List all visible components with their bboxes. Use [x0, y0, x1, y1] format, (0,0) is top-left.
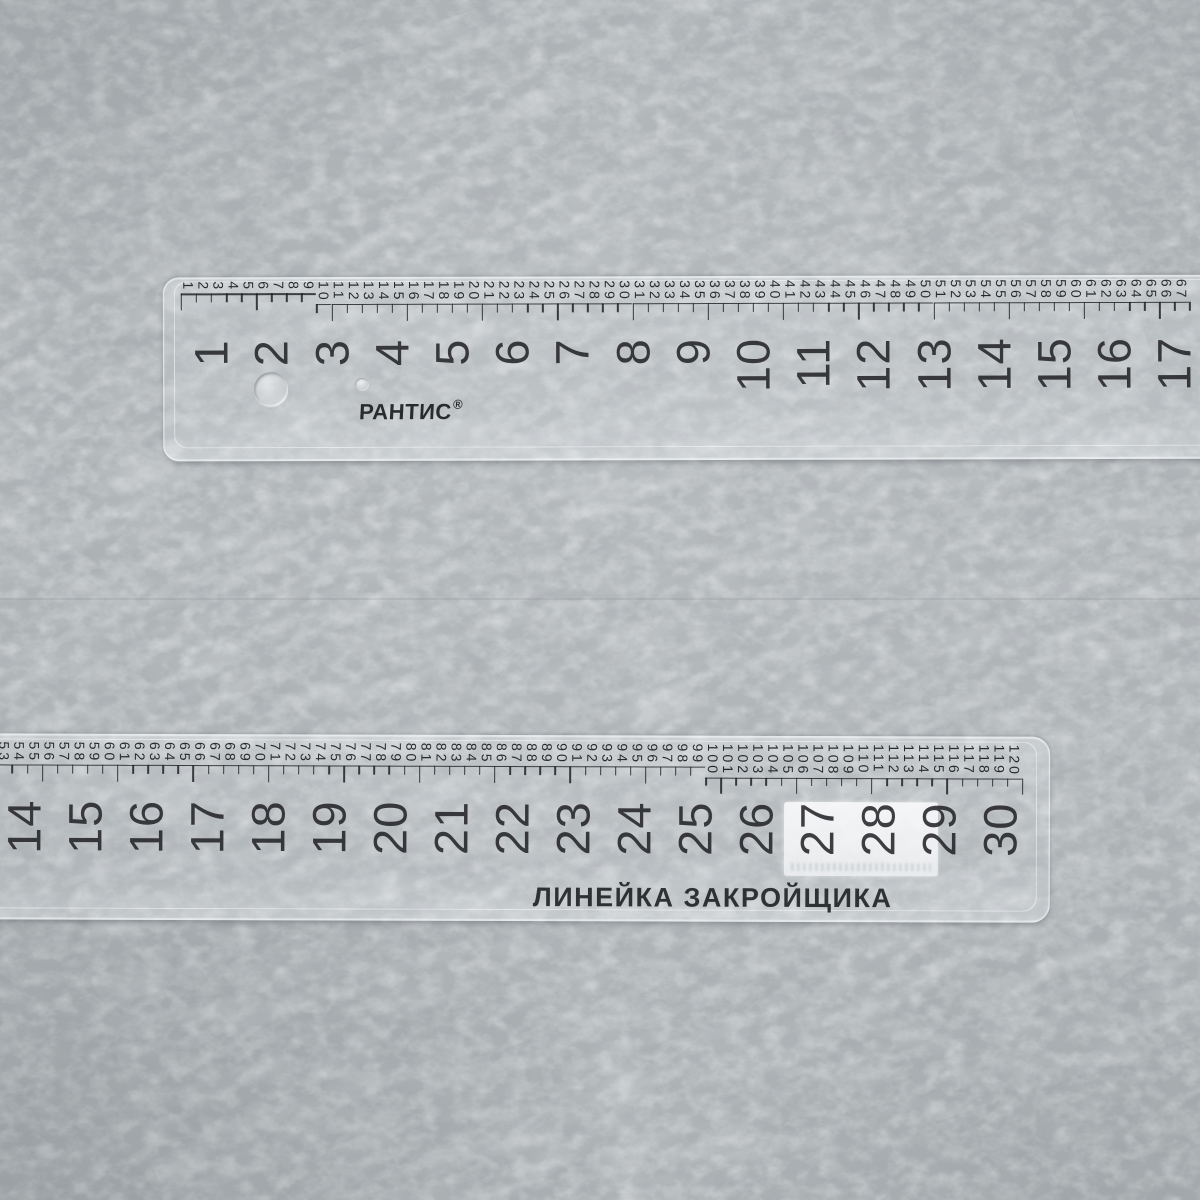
scale-underline	[1054, 302, 1069, 303]
scale-underline	[708, 303, 723, 304]
scale-underline	[464, 766, 479, 767]
scale-number: 40	[768, 280, 782, 302]
scale-underline	[437, 304, 452, 305]
scale-underline	[422, 304, 437, 305]
scale-number: 5	[241, 281, 255, 292]
cm-number: 14	[970, 337, 1017, 391]
scale-underline	[916, 778, 931, 779]
scale-underline	[978, 302, 993, 303]
scale-number: 43	[813, 280, 827, 302]
scale-underline	[962, 778, 977, 779]
scale-tick	[193, 765, 194, 782]
scale-number: 111	[872, 744, 886, 774]
scale-tick	[1159, 302, 1160, 319]
scale-underline	[117, 765, 132, 766]
scale-underline	[783, 303, 798, 304]
cm-number: 23	[549, 801, 596, 855]
scale-underline	[241, 293, 256, 294]
scale-number: 56	[42, 742, 56, 764]
scale-number: 54	[12, 741, 26, 763]
scale-underline	[1129, 302, 1144, 303]
scale-number: 93	[600, 743, 614, 765]
scale-number: 34	[678, 280, 692, 302]
scale-underline	[361, 304, 376, 305]
scale-underline	[871, 778, 886, 779]
cm-number: 17	[1151, 337, 1198, 391]
scale-number: 8	[287, 281, 301, 292]
scale-number: 42	[798, 280, 812, 302]
scale-underline	[813, 303, 828, 304]
scale-number: 114	[917, 744, 931, 775]
scale-number: 86	[495, 743, 509, 765]
scale-underline	[1159, 302, 1174, 303]
scale-underline	[57, 765, 72, 766]
scale-number: 63	[1114, 279, 1128, 301]
scale-number: 56	[1009, 279, 1023, 301]
scale-number: 44	[828, 280, 842, 302]
scale-number: 91	[570, 743, 584, 765]
scale-underline	[316, 304, 331, 305]
scale-underline	[1144, 302, 1159, 303]
scale-number: 89	[540, 743, 554, 765]
scale-underline	[1069, 302, 1084, 303]
cm-number: 5	[428, 339, 475, 366]
scale-underline	[811, 778, 826, 779]
scale-underline	[392, 304, 407, 305]
cm-number: 1	[188, 339, 235, 366]
scale-number: 60	[1069, 279, 1083, 301]
ruler-bottom-scale: 5354555657585960616263646566676869707172…	[0, 734, 1049, 921]
scale-underline	[886, 778, 901, 779]
scale-number: 48	[889, 280, 903, 302]
scale-underline	[178, 765, 193, 766]
scale-underline	[407, 304, 422, 305]
scale-underline	[647, 303, 662, 304]
cm-number: 27	[793, 802, 840, 856]
scale-number: 18	[437, 281, 451, 303]
scale-number: 20	[467, 281, 481, 303]
scale-number: 62	[133, 742, 147, 764]
scale-underline	[286, 293, 301, 294]
cm-number: 25	[671, 802, 718, 856]
scale-number: 58	[1039, 279, 1053, 301]
scale-underline	[572, 303, 587, 304]
scale-tick	[947, 778, 948, 795]
scale-underline	[690, 767, 705, 768]
scale-underline	[542, 303, 557, 304]
scale-number: 66	[193, 742, 207, 764]
scale-tick	[1022, 778, 1023, 795]
scale-number: 70	[253, 742, 267, 764]
scale-underline	[434, 766, 449, 767]
scale-underline	[826, 778, 841, 779]
scale-underline	[87, 765, 102, 766]
scale-tick	[343, 766, 344, 783]
cm-number: 15	[1030, 337, 1077, 391]
scale-number: 69	[238, 742, 252, 764]
cm-number: 26	[732, 802, 779, 856]
scale-number: 22	[497, 281, 511, 303]
scale-underline	[1084, 302, 1099, 303]
scale-tick	[117, 765, 118, 782]
scale-underline	[901, 778, 916, 779]
scale-number: 24	[527, 280, 541, 302]
scale-number: 103	[751, 744, 765, 776]
scale-number: 118	[977, 744, 991, 775]
scale-underline	[72, 765, 87, 766]
scale-number: 3	[211, 281, 225, 292]
scale-number: 67	[1175, 279, 1189, 301]
scale-number: 117	[962, 744, 976, 775]
scale-number: 81	[419, 743, 433, 765]
scale-number: 95	[630, 743, 644, 765]
scale-number: 15	[392, 281, 406, 303]
scale-tick	[482, 304, 483, 321]
scale-number: 36	[708, 280, 722, 302]
scale-number: 4	[226, 281, 240, 292]
scale-number: 79	[389, 743, 403, 765]
scale-number: 32	[648, 280, 662, 302]
scale-underline	[602, 303, 617, 304]
scale-number: 100	[706, 744, 720, 776]
scale-tick	[632, 303, 633, 320]
scale-underline	[196, 294, 211, 295]
cm-number: 18	[244, 800, 291, 854]
scale-underline	[479, 766, 494, 767]
scale-underline	[587, 303, 602, 304]
scale-tick	[708, 303, 709, 320]
scale-number: 23	[512, 281, 526, 303]
scale-number: 19	[452, 281, 466, 303]
scale-underline	[359, 766, 374, 767]
scale-underline	[918, 302, 933, 303]
scale-number: 92	[585, 743, 599, 765]
scale-number: 28	[588, 280, 602, 302]
scale-tick	[268, 765, 269, 782]
scale-number: 64	[1129, 279, 1143, 301]
scale-number: 90	[555, 743, 569, 765]
scale-number: 53	[964, 279, 978, 301]
scale-number: 80	[404, 743, 418, 765]
scale-number: 64	[163, 742, 177, 764]
scale-underline	[1114, 302, 1129, 303]
cm-number: 16	[1091, 337, 1138, 391]
scale-tick	[783, 303, 784, 320]
scale-underline	[298, 765, 313, 766]
scale-underline	[211, 294, 226, 295]
scale-underline	[193, 765, 208, 766]
scale-underline	[328, 765, 343, 766]
scale-underline	[768, 303, 783, 304]
scale-underline	[268, 765, 283, 766]
ruler-bottom: 5354555657585960616263646566676869707172…	[0, 733, 1050, 922]
ruler-top: 1234567891011121314151617181920212223242…	[163, 275, 1200, 462]
scale-underline	[374, 766, 389, 767]
scale-underline	[841, 778, 856, 779]
scale-number: 39	[753, 280, 767, 302]
scale-underline	[677, 303, 692, 304]
scale-underline	[0, 764, 12, 765]
scale-underline	[675, 767, 690, 768]
scale-underline	[27, 765, 42, 766]
scale-tick	[858, 303, 859, 320]
scale-tick	[1084, 302, 1085, 319]
scale-number: 9	[302, 281, 316, 292]
scale-underline	[947, 778, 962, 779]
scale-underline	[617, 303, 632, 304]
scale-number: 11	[332, 281, 346, 302]
cm-number: 30	[976, 802, 1023, 856]
cm-number: 21	[427, 801, 474, 855]
scale-underline	[1024, 302, 1039, 303]
scale-number: 83	[450, 743, 464, 765]
scale-number: 52	[949, 279, 963, 301]
scale-underline	[497, 304, 512, 305]
scale-number: 10	[317, 281, 331, 303]
cm-number: 19	[305, 800, 352, 854]
scale-underline	[331, 304, 346, 305]
scale-underline	[376, 304, 391, 305]
scale-number: 77	[359, 743, 373, 765]
scale-number: 58	[73, 742, 87, 764]
scale-number: 85	[480, 743, 494, 765]
ruler-top-scale: 1234567891011121314151617181920212223242…	[164, 276, 1200, 461]
scale-number: 62	[1099, 279, 1113, 301]
cm-number: 3	[308, 339, 355, 366]
scale-number: 41	[783, 280, 797, 302]
scale-underline	[482, 304, 497, 305]
scale-number: 105	[781, 744, 795, 776]
cm-number: 17	[183, 800, 230, 854]
scale-underline	[645, 766, 660, 767]
scale-number: 68	[223, 742, 237, 764]
scale-number: 59	[88, 742, 102, 764]
scale-number: 27	[573, 280, 587, 302]
scale-number: 25	[542, 280, 556, 302]
scale-number: 106	[796, 744, 810, 776]
scale-underline	[856, 778, 871, 779]
scale-underline	[693, 303, 708, 304]
scale-tick	[933, 302, 934, 319]
scale-underline	[271, 293, 286, 294]
scale-underline	[452, 304, 467, 305]
scale-number: 57	[1024, 279, 1038, 301]
scale-number: 59	[1054, 279, 1068, 301]
scale-number: 17	[422, 281, 436, 303]
scale-underline	[524, 766, 539, 767]
scale-number: 110	[857, 744, 871, 775]
scale-number: 108	[826, 744, 840, 776]
scale-number: 115	[932, 744, 946, 775]
scale-number: 97	[661, 743, 675, 765]
scale-number: 98	[676, 744, 690, 766]
scale-underline	[977, 778, 992, 779]
scale-number: 113	[902, 744, 916, 775]
scale-number: 13	[362, 281, 376, 303]
scale-tick	[871, 778, 872, 795]
scale-underline	[570, 766, 585, 767]
scale-number: 55	[27, 742, 41, 764]
scale-tick	[419, 766, 420, 783]
scale-underline	[903, 303, 918, 304]
scale-underline	[843, 303, 858, 304]
scale-underline	[42, 765, 57, 766]
scale-underline	[389, 766, 404, 767]
scale-number: 102	[736, 744, 750, 776]
scale-underline	[283, 765, 298, 766]
scale-number: 99	[691, 744, 705, 766]
scale-tick	[570, 766, 571, 783]
scale-number: 2	[196, 281, 210, 292]
scale-underline	[12, 765, 27, 766]
scale-number: 46	[859, 280, 873, 302]
scale-underline	[630, 766, 645, 767]
scale-number: 29	[603, 280, 617, 302]
scale-underline	[162, 765, 177, 766]
scale-number: 1	[181, 281, 195, 292]
scale-number: 30	[618, 280, 632, 302]
scale-number: 65	[1144, 279, 1158, 301]
scale-number: 14	[377, 281, 391, 303]
scale-number: 67	[208, 742, 222, 764]
scale-underline	[512, 304, 527, 305]
scale-underline	[253, 765, 268, 766]
scale-underline	[208, 765, 223, 766]
scale-number: 51	[934, 279, 948, 301]
scale-underline	[256, 293, 271, 294]
scale-underline	[766, 778, 781, 779]
scale-underline	[527, 304, 542, 305]
scale-number: 57	[57, 742, 71, 764]
scale-number: 38	[738, 280, 752, 302]
scale-underline	[738, 303, 753, 304]
scale-number: 61	[118, 742, 132, 764]
cm-number: 16	[122, 800, 169, 854]
scale-number: 112	[887, 744, 901, 775]
scale-underline	[449, 766, 464, 767]
scale-underline	[662, 303, 677, 304]
scale-tick	[1009, 302, 1010, 319]
cm-number: 7	[549, 338, 596, 365]
scale-number: 26	[558, 280, 572, 302]
scale-number: 45	[843, 280, 857, 302]
scale-underline	[888, 303, 903, 304]
scale-underline	[1174, 302, 1189, 303]
scale-underline	[147, 765, 162, 766]
scale-underline	[781, 778, 796, 779]
scale-number: 7	[272, 281, 286, 292]
scale-number: 60	[103, 742, 117, 764]
cm-number: 15	[61, 800, 108, 854]
scale-underline	[301, 293, 316, 294]
scale-underline	[932, 778, 947, 779]
scale-tick	[331, 304, 332, 321]
cm-number: 9	[669, 338, 716, 365]
scale-number: 84	[465, 743, 479, 765]
scale-underline	[933, 302, 948, 303]
scale-underline	[994, 302, 1009, 303]
scale-number: 76	[344, 743, 358, 765]
scale-number: 12	[347, 281, 361, 303]
scale-underline	[585, 766, 600, 767]
scale-underline	[660, 767, 675, 768]
scale-number: 116	[947, 744, 961, 775]
scale-underline	[539, 766, 554, 767]
scale-underline	[313, 765, 328, 766]
scale-number: 119	[992, 745, 1006, 776]
felt-crease	[0, 598, 1200, 600]
scale-number: 63	[148, 742, 162, 764]
scale-tick	[645, 766, 646, 783]
scale-underline	[132, 765, 147, 766]
scale-underline	[992, 778, 1007, 779]
scale-tick	[407, 304, 408, 321]
scale-number: 49	[904, 279, 918, 301]
scale-number: 71	[269, 742, 283, 764]
cm-number: 8	[609, 338, 656, 365]
scale-number: 21	[482, 281, 496, 303]
scale-number: 61	[1084, 279, 1098, 301]
scale-tick	[494, 766, 495, 783]
scale-underline	[615, 766, 630, 767]
scale-number: 35	[693, 280, 707, 302]
scale-underline	[223, 765, 238, 766]
scale-number: 16	[407, 281, 421, 303]
scale-underline	[494, 766, 509, 767]
scale-underline	[828, 303, 843, 304]
scale-underline	[555, 766, 570, 767]
scale-underline	[705, 777, 720, 778]
scale-number: 37	[723, 280, 737, 302]
cm-number: 24	[610, 801, 657, 855]
scale-number: 109	[842, 744, 856, 776]
scale-underline	[798, 303, 813, 304]
scale-underline	[632, 303, 647, 304]
scale-underline	[226, 294, 241, 295]
scale-underline	[720, 778, 735, 779]
cm-number: 6	[489, 338, 536, 365]
scale-number: 87	[510, 743, 524, 765]
scale-number: 120	[1007, 745, 1021, 777]
scale-underline	[509, 766, 524, 767]
cm-number: 10	[729, 338, 776, 392]
scale-underline	[723, 303, 738, 304]
scale-tick	[42, 765, 43, 782]
scale-underline	[467, 304, 482, 305]
cm-number: 13	[910, 337, 957, 391]
scale-underline	[735, 778, 750, 779]
scale-number: 31	[633, 280, 647, 302]
scale-number: 96	[646, 743, 660, 765]
scale-underline	[963, 302, 978, 303]
scale-underline	[557, 303, 572, 304]
scale-tick	[1189, 302, 1190, 311]
scale-underline	[753, 303, 768, 304]
scale-underline	[1099, 302, 1114, 303]
cm-number: 14	[0, 799, 47, 853]
scale-underline	[948, 302, 963, 303]
scale-tick	[720, 778, 721, 795]
scale-underline	[858, 303, 873, 304]
scale-number: 107	[811, 744, 825, 776]
scale-underline	[343, 766, 358, 767]
scale-number: 104	[766, 744, 780, 776]
scale-underline	[181, 294, 196, 295]
felt-background	[0, 0, 1200, 1200]
scale-number: 47	[874, 280, 888, 302]
scale-number: 94	[615, 743, 629, 765]
scale-underline	[404, 766, 419, 767]
